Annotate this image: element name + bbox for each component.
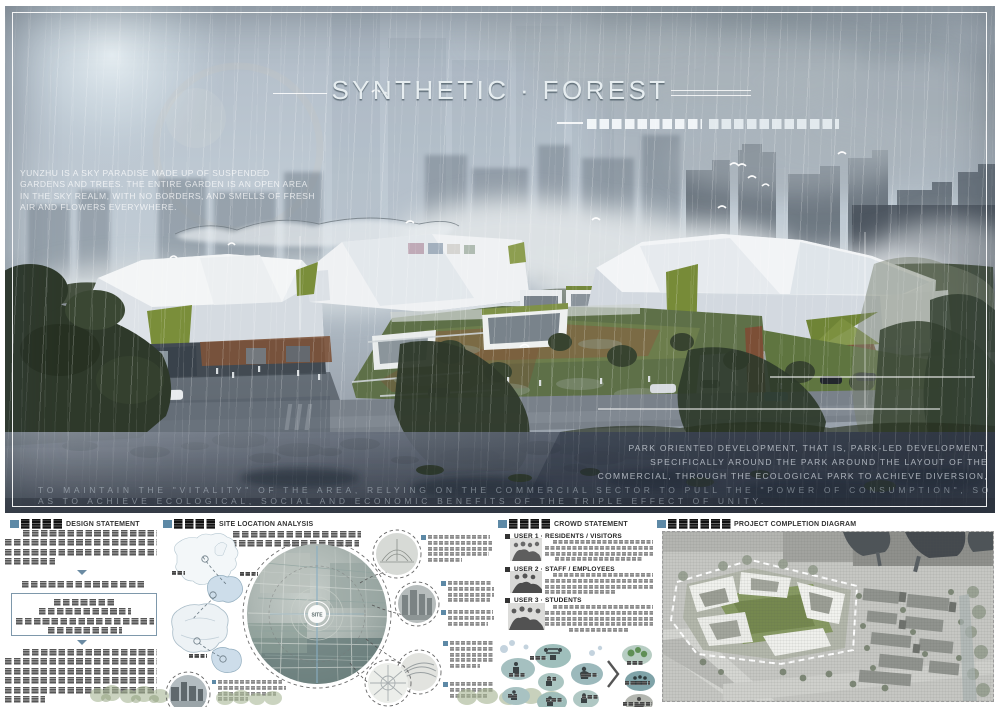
svg-text:SITE: SITE bbox=[311, 613, 323, 619]
